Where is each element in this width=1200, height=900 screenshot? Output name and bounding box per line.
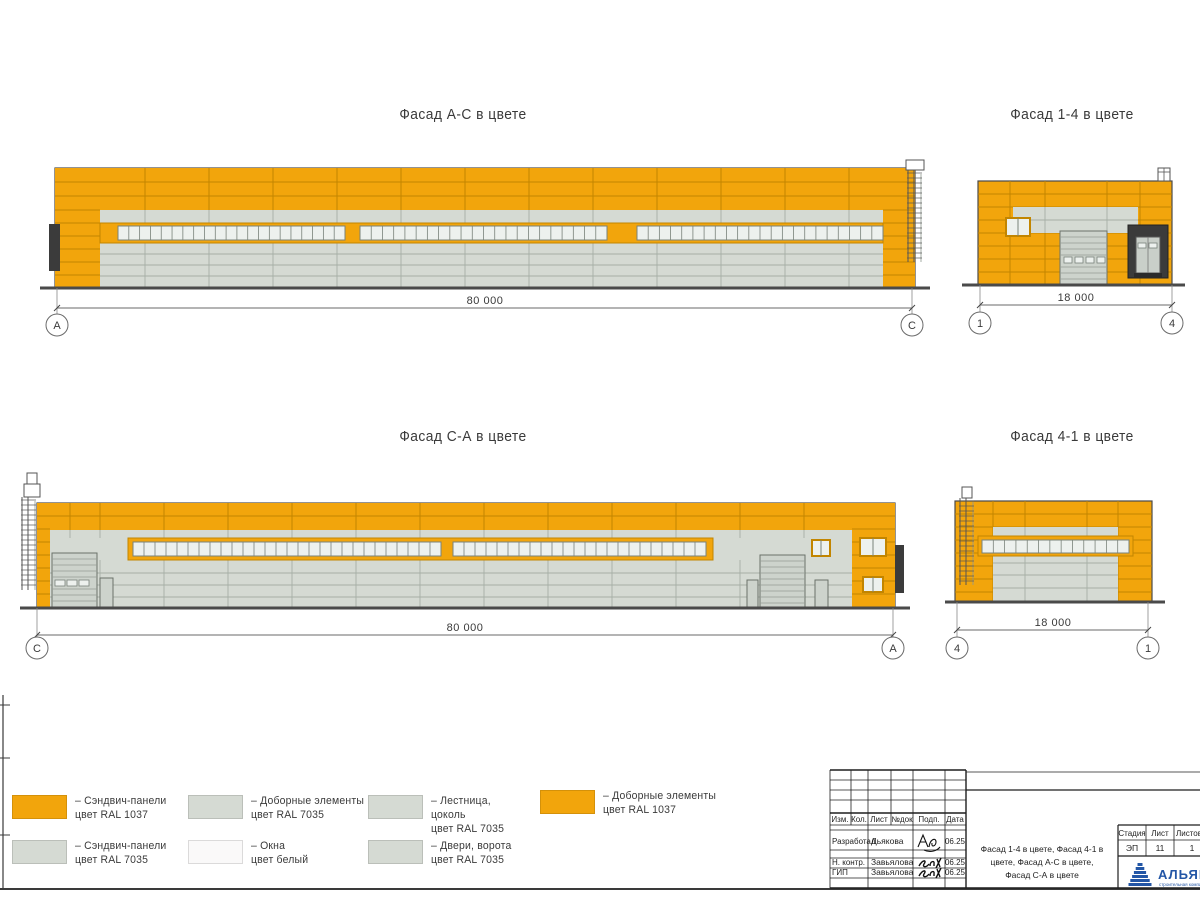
tb-role: ГИП — [832, 868, 848, 877]
sheet-frame-left — [0, 690, 20, 900]
tb-header-kol: Кол. — [851, 815, 867, 824]
tb-sheets-label: Листов — [1176, 829, 1200, 838]
legend-swatch-ral1037 — [540, 790, 595, 814]
facade-ca-dimension: 80 000 — [447, 622, 484, 634]
tb-doc-title-line1: Фасад 1-4 в цвете, Фасад 4-1 в — [981, 844, 1104, 854]
tb-header-podp: Подп. — [918, 815, 939, 824]
tb-date: 06.25 — [945, 858, 966, 867]
tb-name: Дьякова — [871, 836, 904, 846]
tb-name: Завьялова — [871, 867, 914, 877]
legend-item: – Окнацвет белый — [188, 840, 311, 868]
facade-41-dimension: 18 000 — [1035, 617, 1072, 629]
axis-marker-label: А — [889, 643, 897, 655]
legend-label: – Доборные элементыцвет RAL 7035 — [251, 795, 370, 823]
legend-swatch-white — [188, 840, 243, 864]
tb-role: Разработал — [832, 837, 876, 846]
tb-role: Н. контр. — [832, 858, 865, 867]
tb-doc-title-line3: Фасад С-А в цвете — [1005, 870, 1079, 880]
tb-sheets-value: 1 — [1190, 843, 1195, 853]
company-logo-subtext: строительная компания — [1159, 882, 1200, 887]
legend-item: – Доборные элементыцвет RAL 1037 — [540, 790, 722, 818]
axis-marker-label: 1 — [1145, 643, 1151, 655]
facade-41-elevation: 18 000 4 1 — [940, 470, 1200, 668]
facade-14-dimension: 18 000 — [1058, 292, 1095, 304]
tb-doc-title-line2: цвете, Фасад А-С в цвете, — [991, 857, 1094, 867]
legend-label: – Двери, воротацвет RAL 7035 — [431, 840, 516, 868]
legend-item: – Доборные элементыцвет RAL 7035 — [188, 795, 370, 823]
tb-header-list: Лист — [870, 815, 888, 824]
legend-swatch-ral7035 — [188, 795, 243, 819]
legend-item: – Лестница,цокольцвет RAL 7035 — [368, 795, 508, 836]
legend-label: – Лестница,цокольцвет RAL 7035 — [431, 795, 508, 836]
legend-label: – Сэндвич-панелицвет RAL 7035 — [75, 840, 171, 868]
legend-swatch-ral7035 — [368, 795, 423, 819]
axis-marker-label: А — [53, 320, 61, 332]
facade-41-title: Фасад 4-1 в цвете — [989, 428, 1155, 445]
facade-ac-geometry — [40, 160, 930, 314]
facade-14-elevation: 18 000 1 4 — [945, 155, 1200, 347]
legend-label: – Сэндвич-панелицвет RAL 1037 — [75, 795, 171, 823]
tb-stage-value: ЭП — [1126, 843, 1138, 853]
facade-14-geometry — [962, 168, 1185, 312]
tb-name: Завьялова — [871, 857, 914, 867]
tb-stage-label: Стадия — [1118, 829, 1145, 838]
facade-ac-dimension: 80 000 — [467, 295, 504, 307]
axis-marker-label: 4 — [1169, 318, 1175, 330]
tb-header-ndok: №док — [891, 815, 913, 824]
axis-marker-label: С — [33, 643, 41, 655]
legend-item: – Сэндвич-панелицвет RAL 1037 — [12, 795, 171, 823]
tb-sheet-label: Лист — [1151, 829, 1169, 838]
legend-item: – Сэндвич-панелицвет RAL 7035 — [12, 840, 171, 868]
signature-nkontr — [919, 858, 941, 868]
tb-date: 06.25 — [945, 868, 966, 877]
legend-label: – Окнацвет белый — [251, 840, 311, 868]
legend-label: – Доборные элементыцвет RAL 1037 — [603, 790, 722, 818]
facade-14-title: Фасад 1-4 в цвете — [989, 106, 1155, 123]
legend-swatch-ral7035 — [12, 840, 67, 864]
facade-41-geometry — [945, 487, 1165, 637]
legend-item: – Двери, воротацвет RAL 7035 — [368, 840, 516, 868]
signature-gip — [919, 868, 941, 878]
legend-swatch-ral7035 — [368, 840, 423, 864]
facade-ca-elevation: 80 000 С А — [15, 470, 920, 668]
company-logo-text: АЛЬЯНС — [1158, 867, 1200, 882]
legend-swatch-ral1037 — [12, 795, 67, 819]
axis-marker-label: 4 — [954, 643, 960, 655]
axis-marker-label: 1 — [977, 318, 983, 330]
tb-header-izm: Изм. — [831, 815, 848, 824]
axis-marker-label: С — [908, 320, 916, 332]
company-logo-icon — [1129, 863, 1152, 886]
facade-ca-geometry — [20, 473, 910, 638]
drawing-sheet: { "colors": { "ral1037": "#F2A50C", "ral… — [0, 0, 1200, 900]
title-block: Изм. Кол. Лист №док Подп. Дата Разработа… — [828, 765, 1200, 890]
facade-ca-title: Фасад С-А в цвете — [339, 428, 587, 445]
tb-date: 06.25 — [945, 837, 966, 846]
tb-header-data: Дата — [946, 815, 964, 824]
signature-razrabotal — [918, 835, 940, 851]
facade-ac-title: Фасад А-С в цвете — [339, 106, 587, 123]
tb-sheet-value: 11 — [1156, 843, 1165, 853]
facade-ac-elevation: 80 000 А С — [40, 155, 940, 347]
